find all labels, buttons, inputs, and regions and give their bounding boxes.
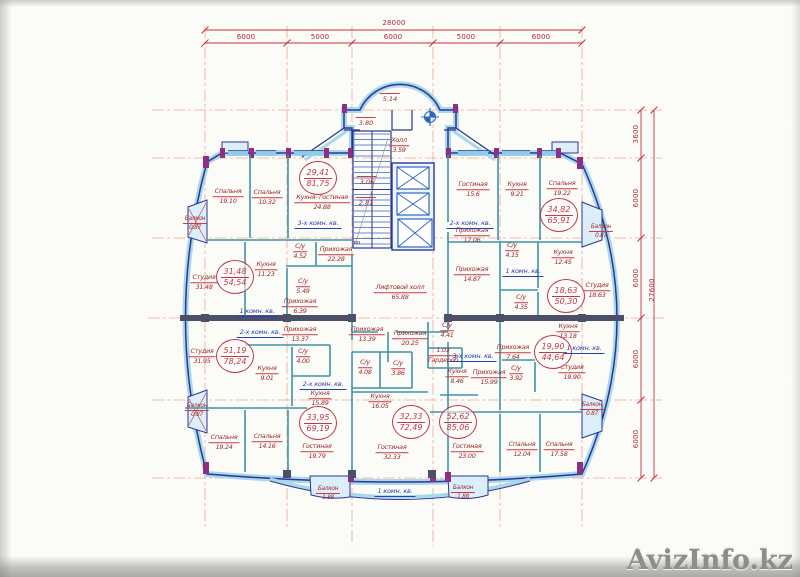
dimension-top-total: 28000 — [382, 19, 405, 27]
stair-dim-label: 3.80 — [356, 117, 376, 127]
dimension-top-segment: 5000 — [311, 33, 330, 41]
unit-type-label: 1 комн. кв. — [502, 267, 543, 277]
dimension-top-segment: 6000 — [237, 33, 256, 41]
room-label: С/у4.35 — [514, 294, 528, 312]
room-label: Спальня14.16 — [252, 433, 283, 451]
apartment-area-badge: 32,3372,49 — [392, 405, 430, 439]
dimension-top-segment: 5000 — [457, 33, 476, 41]
room-label: Холл3.59 — [389, 137, 409, 155]
room-label: С/у5.49 — [296, 278, 310, 296]
unit-type-label: 2-х комн. кв. — [237, 328, 284, 338]
room-label: Кухня8.46 — [446, 368, 469, 386]
room-label: Кухня9.21 — [506, 181, 529, 199]
dimension-right-segment: 6000 — [632, 350, 640, 369]
room-label: С/у4.08 — [358, 359, 372, 377]
apartment-area-badge: 52,6285,06 — [439, 405, 477, 439]
scanned-floor-plan-page: Спальня19.10Спальня10.32Кухня- гостиная2… — [0, 0, 800, 577]
room-label: Гостиная15.6 — [457, 181, 490, 199]
room-label: Прихожая13.39 — [349, 326, 385, 344]
apartment-area-badge: 51,1978,24 — [216, 339, 254, 373]
room-label: Спальня10.32 — [252, 189, 283, 207]
room-label: Гостиная32.33 — [376, 444, 409, 462]
room-label: Балкон0.87 — [185, 403, 209, 419]
room-label: Прихожая15.99 — [471, 369, 507, 387]
room-label: Прихожая22.28 — [318, 246, 354, 264]
room-label: Гостиная23.00 — [451, 443, 484, 461]
room-label: Балкон1.88 — [451, 485, 475, 501]
unit-type-label: 1 комн. кв. — [236, 307, 277, 317]
room-label: С/у4.41 — [440, 322, 454, 340]
room-label: Балкон0.87 — [589, 224, 613, 240]
room-label: Балкон1.88 — [316, 486, 340, 502]
room-label: Прихожая7.64 — [495, 344, 531, 362]
room-label: Прихожая13.37 — [282, 326, 318, 344]
room-label: Кухня12.45 — [552, 249, 575, 267]
room-label: Студия31.48 — [190, 274, 217, 292]
room-label: Спальня12.04 — [507, 441, 538, 459]
stair-dim-label: 3.06 — [357, 176, 377, 186]
room-label: Студия18.63 — [583, 282, 610, 300]
watermark: AvizInfo.kz — [627, 545, 793, 576]
room-label: Кухня- гостиная24.88 — [294, 194, 350, 212]
apartment-area-badge: 34,8265,91 — [540, 198, 578, 232]
room-label: Прихожая17.06 — [454, 227, 490, 245]
apartment-area-badge: 33,9569,19 — [299, 406, 337, 440]
unit-type-label: 3-х комн. кв. — [295, 219, 342, 229]
apartment-area-badge: 31,4854,54 — [216, 260, 254, 294]
room-label: С/у4.00 — [296, 348, 310, 366]
room-label: Студия19.90 — [558, 364, 585, 382]
labels-overlay: Спальня19.10Спальня10.32Кухня- гостиная2… — [0, 0, 800, 577]
room-label: Балкон0.87 — [580, 402, 604, 418]
unit-type-label: 2-х комн. кв. — [300, 380, 347, 390]
dimension-right-segment: 3600 — [632, 125, 640, 144]
room-label: Спальня19.10 — [213, 188, 244, 206]
room-label: Прихожая14.87 — [454, 266, 490, 284]
room-label: С/у3.92 — [509, 365, 523, 383]
unit-type-label: 3-х комн. кв. — [450, 352, 497, 362]
room-label: Студия31.95 — [188, 348, 215, 366]
dimension-top-segment: 6000 — [532, 33, 551, 41]
dimension-right-segment: 6000 — [632, 269, 640, 288]
room-label: Спальня17.58 — [544, 441, 575, 459]
dimension-top-segment: 6000 — [384, 33, 403, 41]
apartment-area-badge: 29,4181,75 — [299, 161, 337, 195]
room-label: Спальня19.24 — [209, 434, 240, 452]
room-label: Балкон0.87 — [183, 216, 207, 232]
dimension-right-segment: 6000 — [632, 189, 640, 208]
unit-type-label: 2-х комн. кв. — [447, 219, 494, 229]
stair-dim-label: 2.81 — [356, 197, 376, 207]
room-label: Прихожая20.25 — [392, 330, 428, 348]
dimension-right-segment: 6000 — [632, 430, 640, 449]
unit-type-label: 1 комн. кв. — [374, 487, 415, 497]
room-label: С/у4.52 — [293, 243, 307, 261]
room-label: Кухня9.01 — [256, 365, 279, 383]
room-label: Спальня19.22 — [547, 180, 578, 198]
room-label: С/у4.15 — [505, 242, 519, 260]
stair-dim-label: 5.14 — [380, 93, 400, 103]
misc-label: во — [354, 240, 361, 246]
room-label: С/у3.86 — [391, 360, 405, 378]
room-label: Прихожая6.39 — [282, 298, 318, 316]
room-label: Кухня11.23 — [255, 261, 278, 279]
room-label: Гостиная19.79 — [301, 443, 334, 461]
room-label: Кухня16.05 — [369, 393, 392, 411]
unit-type-label: 1 комн. кв. — [563, 344, 604, 354]
dimension-right-total: 27600 — [648, 278, 656, 301]
apartment-area-badge: 18,6350,30 — [547, 279, 585, 313]
room-label: Лифтовой холл65.88 — [374, 284, 427, 302]
